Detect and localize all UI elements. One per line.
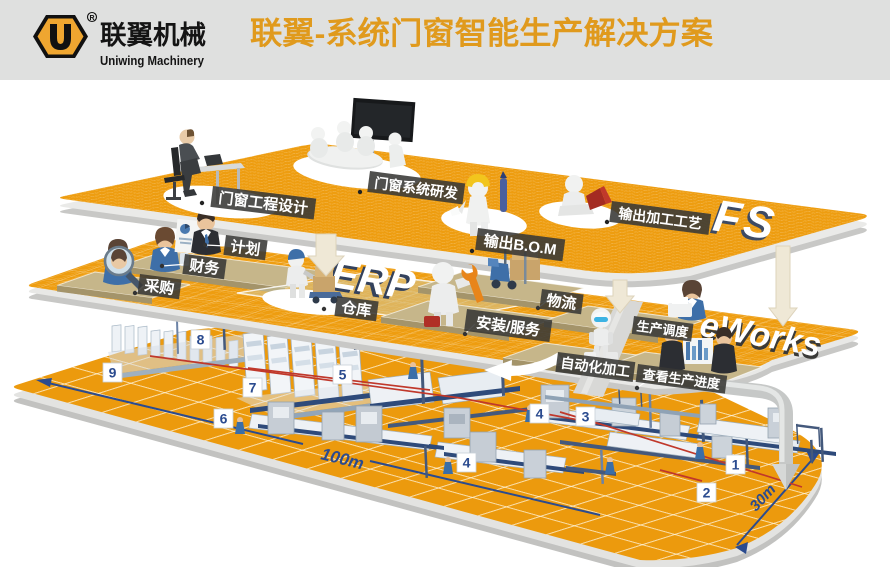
svg-text:2: 2 xyxy=(703,485,711,501)
svg-text:4: 4 xyxy=(536,406,544,422)
svg-text:8: 8 xyxy=(197,332,205,348)
svg-text:联翼-系统门窗智能生产解决方案: 联翼-系统门窗智能生产解决方案 xyxy=(250,16,714,51)
svg-text:5: 5 xyxy=(339,367,347,383)
svg-text:Uniwing Machinery: Uniwing Machinery xyxy=(100,53,205,68)
svg-text:9: 9 xyxy=(109,365,117,381)
svg-text:7: 7 xyxy=(249,380,257,396)
svg-text:R: R xyxy=(89,15,94,22)
svg-text:联翼机械: 联翼机械 xyxy=(100,20,206,50)
svg-text:4: 4 xyxy=(463,455,471,471)
svg-text:1: 1 xyxy=(732,457,740,473)
svg-text:6: 6 xyxy=(220,411,228,427)
svg-text:3: 3 xyxy=(582,409,590,425)
svg-text:FS: FS xyxy=(710,190,781,250)
